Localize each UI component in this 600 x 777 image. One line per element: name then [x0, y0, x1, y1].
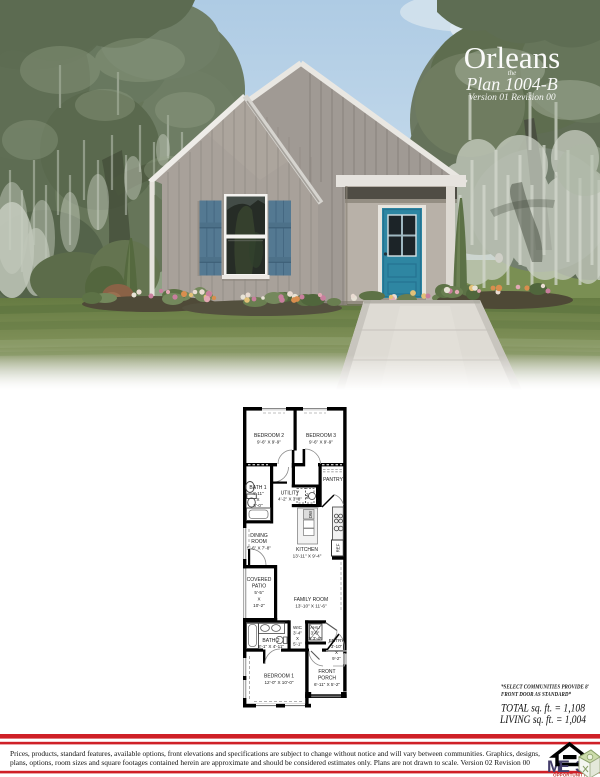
svg-text:Version 01 Revision 00: Version 01 Revision 00: [468, 93, 556, 103]
svg-text:9'-6" X 9'-9": 9'-6" X 9'-9": [309, 440, 333, 445]
svg-text:8'-1" X 4'-11": 8'-1" X 4'-11": [258, 644, 284, 649]
svg-text:KITCHEN: KITCHEN: [296, 547, 318, 553]
svg-text:9'-2": 9'-2": [332, 656, 341, 661]
svg-text:4'-11": 4'-11": [252, 491, 264, 496]
svg-text:FRONT: FRONT: [318, 669, 335, 675]
svg-text:5'-5": 5'-5": [254, 590, 264, 595]
svg-text:OPPORTUNITY: OPPORTUNITY: [553, 773, 586, 777]
svg-text:ENTRY: ENTRY: [329, 638, 345, 643]
svg-text:4'-2" X 3'-8": 4'-2" X 3'-8": [278, 497, 302, 502]
svg-text:COVERED: COVERED: [247, 577, 272, 583]
svg-text:WIC: WIC: [293, 625, 303, 630]
svg-text:9'-6" X 9'-9": 9'-6" X 9'-9": [257, 440, 281, 445]
svg-text:*SELECT COMMUNITIES PROVIDE 8': *SELECT COMMUNITIES PROVIDE 8': [501, 684, 589, 691]
svg-text:X: X: [296, 636, 299, 641]
svg-text:BEDROOM 1: BEDROOM 1: [264, 674, 294, 680]
svg-text:X 3'-4": X 3'-4": [309, 636, 322, 641]
svg-text:PORCH: PORCH: [318, 676, 336, 682]
svg-text:3'-10": 3'-10": [331, 644, 343, 649]
svg-text:PATIO: PATIO: [252, 584, 266, 590]
svg-text:plans, options, room sizes and: plans, options, room sizes and square fo…: [10, 758, 530, 767]
svg-text:3'-0": 3'-0": [311, 631, 320, 636]
svg-text:3'-4": 3'-4": [293, 631, 302, 636]
svg-text:FAMILY ROOM: FAMILY ROOM: [294, 597, 328, 603]
svg-text:6'-11" X 5'-2": 6'-11" X 5'-2": [314, 682, 340, 687]
svg-text:BEDROOM 3: BEDROOM 3: [306, 433, 336, 439]
svg-text:WH: WH: [306, 493, 310, 500]
svg-text:TOTAL sq. ft. = 1,108: TOTAL sq. ft. = 1,108: [501, 703, 585, 715]
svg-text:ROOM: ROOM: [251, 539, 267, 545]
svg-text:Plan 1004-B: Plan 1004-B: [465, 74, 558, 94]
svg-text:X: X: [256, 497, 259, 502]
svg-text:Prices, products, standard fea: Prices, products, standard features, ava…: [10, 749, 540, 758]
svg-text:PANTRY: PANTRY: [323, 477, 343, 483]
svg-text:10'-2": 10'-2": [253, 603, 265, 608]
svg-text:5'-6" X 7'-8": 5'-6" X 7'-8": [247, 546, 271, 551]
svg-text:12'-0" X 10'-0": 12'-0" X 10'-0": [264, 680, 293, 685]
svg-text:DW: DW: [308, 510, 313, 518]
svg-text:REF: REF: [336, 543, 341, 552]
svg-text:5'-1": 5'-1": [293, 642, 302, 647]
svg-text:FRONT DOOR AS STANDARD*: FRONT DOOR AS STANDARD*: [501, 691, 572, 698]
svg-text:AHU: AHU: [310, 625, 320, 630]
svg-text:X: X: [335, 650, 338, 655]
svg-text:LIVING sq. ft. = 1,004: LIVING sq. ft. = 1,004: [499, 714, 586, 726]
svg-text:BEDROOM 2: BEDROOM 2: [254, 433, 284, 439]
svg-text:8'-0": 8'-0": [253, 503, 263, 508]
svg-text:X: X: [257, 597, 260, 602]
svg-text:13'-11" X 9'-4": 13'-11" X 9'-4": [293, 554, 322, 559]
svg-text:13'-10" X 11'-6": 13'-10" X 11'-6": [295, 604, 327, 609]
